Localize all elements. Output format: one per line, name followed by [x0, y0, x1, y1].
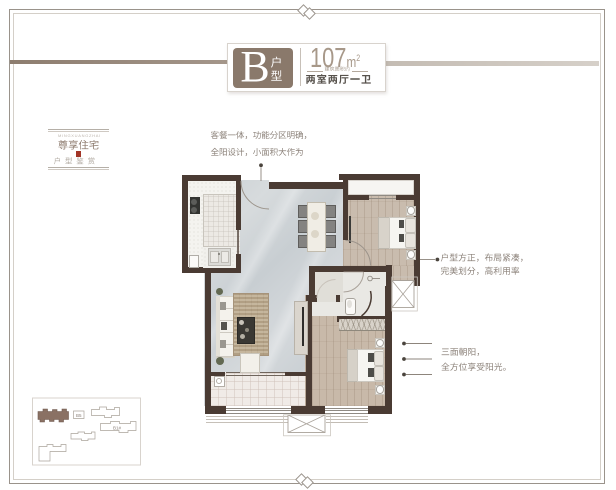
- svg-text:B5: B5: [76, 413, 82, 418]
- svg-text:B1#: B1#: [113, 426, 122, 431]
